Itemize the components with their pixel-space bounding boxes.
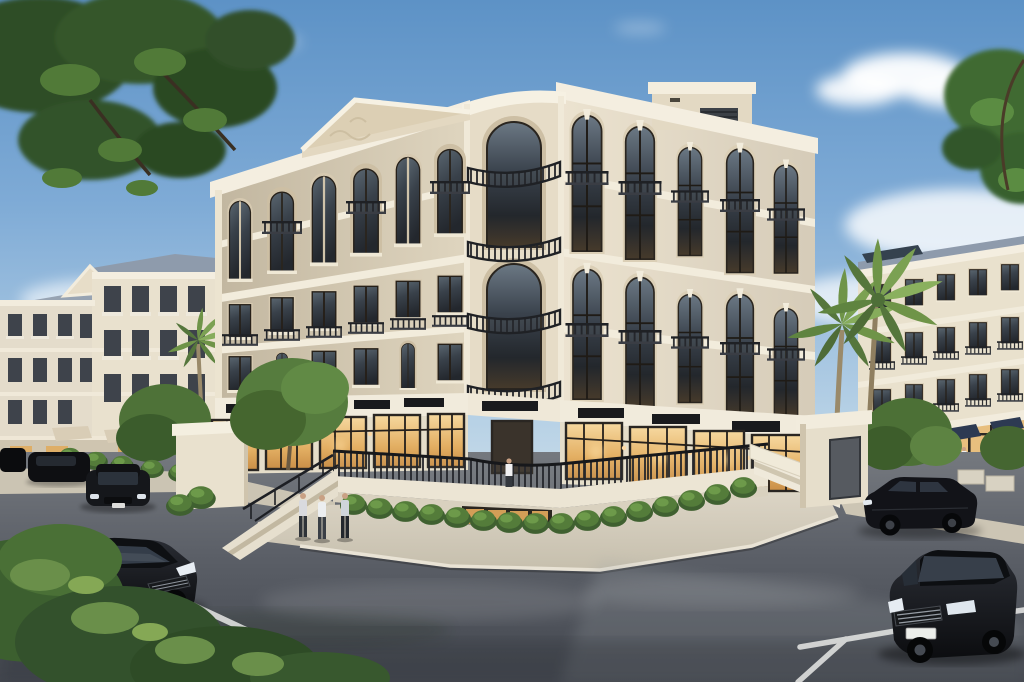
balcony	[997, 341, 1023, 349]
leg	[341, 516, 345, 538]
window	[436, 342, 464, 383]
roof-fixture	[670, 98, 680, 102]
balcony	[965, 398, 991, 406]
window	[269, 296, 296, 335]
balcony	[720, 342, 760, 355]
head	[506, 458, 511, 463]
window	[352, 347, 380, 388]
penthouse-cornice	[648, 82, 756, 94]
tree	[116, 414, 184, 462]
balcony	[222, 334, 258, 346]
window-arched	[394, 154, 422, 247]
balcony	[306, 326, 342, 338]
window	[904, 331, 924, 360]
sign-board	[482, 401, 538, 411]
leg	[323, 517, 327, 539]
leg	[318, 517, 322, 539]
leg	[346, 516, 350, 538]
hut-door	[830, 437, 860, 499]
torso	[506, 464, 513, 476]
window	[1000, 263, 1020, 292]
legs	[506, 476, 513, 487]
balcony	[565, 171, 608, 185]
balcony	[618, 330, 661, 344]
sign-board	[354, 400, 390, 409]
sign-board	[578, 408, 624, 418]
architectural-render	[0, 0, 1024, 682]
balcony	[618, 181, 661, 195]
balcony	[565, 323, 608, 337]
window-arched	[227, 198, 252, 282]
balcony	[262, 221, 302, 234]
balcony	[965, 346, 991, 354]
window	[936, 273, 956, 302]
hut-shade	[800, 424, 806, 508]
window	[436, 274, 464, 315]
window	[352, 284, 380, 325]
balcony	[671, 336, 709, 348]
sign-board	[404, 398, 444, 407]
balcony	[997, 393, 1023, 401]
leg	[299, 516, 303, 537]
balcony	[346, 201, 386, 214]
light-reflection	[580, 576, 860, 608]
head	[342, 493, 348, 499]
window	[394, 279, 422, 320]
utility-hut	[796, 410, 872, 508]
head	[319, 495, 325, 501]
balcony	[720, 199, 760, 212]
balcony	[767, 348, 805, 360]
balcony	[348, 322, 384, 334]
scene-canvas	[0, 0, 1024, 682]
cloud	[614, 22, 666, 34]
balcony	[432, 315, 468, 327]
tree	[910, 426, 962, 466]
window-tall-arch	[772, 303, 800, 419]
trunk	[288, 446, 290, 470]
loggia-arch	[400, 341, 417, 391]
window	[968, 268, 988, 297]
balcony	[264, 329, 300, 341]
cloud	[816, 74, 900, 106]
balcony	[671, 190, 709, 202]
torso	[299, 500, 307, 516]
head	[300, 493, 306, 499]
window	[968, 321, 988, 350]
balcony	[390, 318, 426, 330]
cornice	[0, 300, 95, 306]
car-parked	[26, 452, 94, 487]
torso	[318, 502, 326, 517]
window-arched	[310, 173, 338, 266]
car-parked-far	[0, 448, 26, 472]
car-front-view	[80, 464, 156, 513]
edge-pilaster	[215, 190, 222, 403]
light-reflection	[260, 582, 600, 622]
leg	[304, 516, 308, 537]
balcony	[767, 208, 805, 220]
balcony	[430, 181, 470, 194]
balcony	[901, 356, 927, 364]
window	[936, 378, 956, 407]
window	[1000, 368, 1020, 397]
window	[310, 290, 338, 331]
balcony	[933, 351, 959, 359]
torso	[341, 500, 349, 516]
sign-board	[652, 414, 700, 424]
window	[968, 373, 988, 402]
window	[1000, 316, 1020, 345]
window	[936, 326, 956, 355]
